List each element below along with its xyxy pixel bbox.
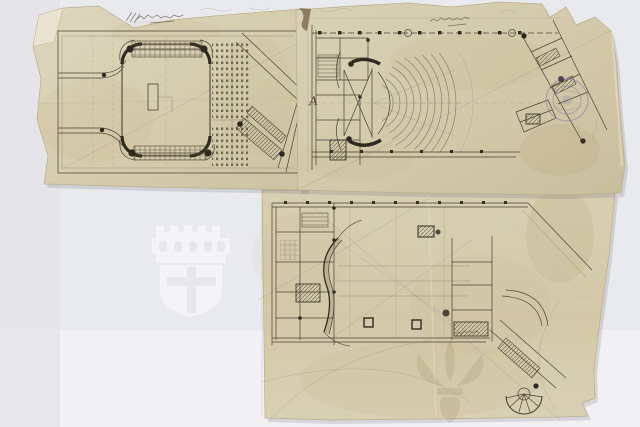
archival-photo: A [0,0,640,427]
letter-annotation: A [308,94,319,109]
